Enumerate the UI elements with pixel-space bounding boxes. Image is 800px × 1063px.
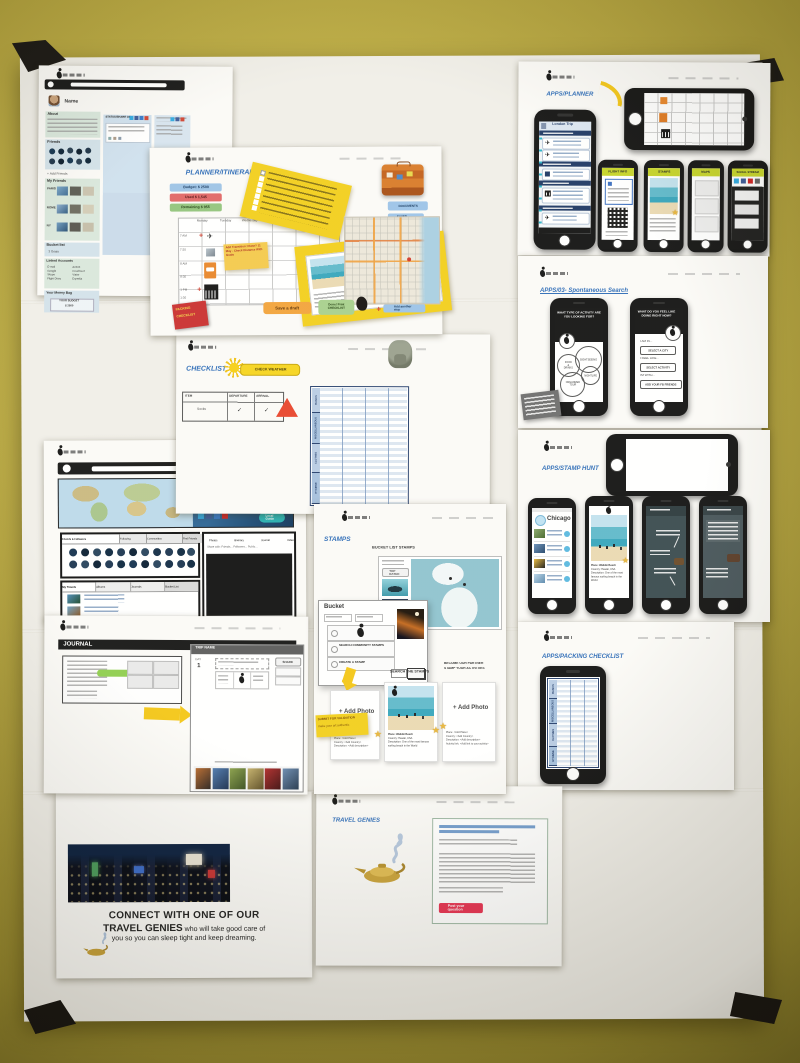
share-box: Photos Itinerary Journal Video Share wit… (202, 531, 296, 619)
journal-setup-box (62, 656, 182, 705)
social-tabs-box: Friends & Followers Following Communitie… (60, 532, 200, 579)
row-thumb (534, 574, 545, 583)
side-button (275, 676, 301, 685)
top-rated-button: TOP RATED (382, 568, 409, 577)
check-weather-label: CHECK WEATHER (254, 368, 286, 372)
brand-logo-text (550, 446, 572, 449)
challenge-footer-lines (706, 568, 728, 578)
backpack-pocket (394, 354, 406, 364)
departure-check: ✓ (237, 407, 242, 414)
phone-speaker (557, 114, 573, 117)
itinerary-phone: London Trip ✈ ✈ ✈ (534, 109, 597, 249)
card-fields: Place: <Add Place> Country: <Add Country… (334, 737, 368, 748)
travel-genies-title: TRAVEL GENIES (332, 818, 380, 824)
packing-rows (320, 388, 407, 504)
done-print-button: Done! Print CHECKLIST (318, 300, 354, 315)
packing-section-label: HYGIENE (315, 482, 318, 493)
apps-search-title: APPS/03- Spontaneous Search (540, 288, 628, 294)
stamp-detail-screen: ★ Place: Waikiki Beach Country: Hawaii, … (589, 506, 629, 598)
airline-logo-square (608, 182, 612, 186)
map-pin (449, 577, 452, 580)
phone-speaker (718, 500, 729, 502)
field-line: Activity link: <Add link to your activit… (446, 742, 493, 746)
genie-lamp-image (352, 830, 422, 886)
tab-friends-followers: Friends & Followers (62, 534, 120, 543)
save-draft-button: Save a draft (263, 302, 311, 314)
navbar-search-input (71, 83, 167, 88)
status-placeholder-lines (108, 126, 144, 133)
moon-dot (415, 612, 419, 616)
travel-tabs-box: My Travels Albums Journals Bucket List (60, 580, 200, 621)
feel-like-screen: WHAT DO YOU FEEL LIKE DOING RIGHT NOW? I… (635, 308, 683, 402)
friend-avatars-row (49, 148, 55, 154)
top-nav-links (668, 273, 740, 275)
phone-speaker (661, 500, 672, 502)
card-fields: Place: Waikiki Beach Country: Hawaii, US… (388, 733, 434, 748)
sheet-journal: JOURNAL TRIP NAME DAY 1 SHARE (44, 615, 309, 794)
row-action-circle (564, 531, 570, 537)
tab-bucket-list: Bucket List (165, 582, 198, 591)
select-activity-button: SELECT ACTIVITY (640, 363, 676, 372)
social-share-icons (129, 116, 133, 120)
user-name-label: Name (65, 99, 79, 105)
linked-accounts-right-list: Airbnb Couchsurf Viator Expedia (72, 266, 84, 282)
stamps-phone: STAMPS ★ (644, 160, 684, 252)
wireframe-box (695, 216, 719, 232)
item-table: ITEM DEPARTURE ARRIVAL Socks ✓ ✓ (182, 392, 284, 422)
screen-tab-bar: SOCIAL STREAM (732, 168, 764, 176)
budget-box: YOUR BUDGET $ 2500 (50, 298, 94, 311)
photo-thumb (265, 768, 281, 789)
toolbar-cell (216, 672, 234, 688)
status-bar (532, 508, 572, 512)
status-compose-box (105, 123, 150, 143)
search-stamps-heading: SEARCH THE STAMPS (390, 670, 429, 674)
row-thumb (534, 559, 545, 568)
stamp-photo-whale (382, 579, 408, 596)
about-text-lines (47, 118, 97, 134)
question-text: WHAT DO YOU FEEL LIKE DOING RIGHT NOW? (636, 310, 677, 318)
packing-rows (557, 680, 597, 766)
faq-body-lines (439, 853, 535, 883)
linked-accounts-left-list: E-mail Google Skype Flight Diary (47, 265, 61, 281)
travel-list-thumb (67, 594, 80, 603)
screen-tab-bar: FLIGHT INFO (602, 168, 634, 176)
tape-bottom-right (730, 992, 782, 1024)
home-button (660, 599, 672, 611)
popup-option-label: SEARCH COMMUNITY STAMPS (339, 644, 389, 648)
phone-speaker (659, 164, 669, 166)
popup-field (324, 614, 352, 622)
item-cell: Socks (197, 408, 206, 411)
genie-lamp-small (82, 930, 116, 958)
row-thumb (534, 544, 545, 553)
add-photo-label: + Add Photo (453, 705, 488, 711)
linked-account: Flight Diary (47, 277, 61, 281)
top-nav-links (340, 157, 406, 159)
brand-logo-text (546, 272, 568, 275)
profile-social-icons (198, 513, 204, 519)
option-cell (127, 675, 153, 689)
packing-sticker-line2: CHECKLIST (176, 313, 195, 319)
share-item-label: Video (287, 539, 294, 542)
day-section-bar (539, 130, 591, 135)
itinerary-row: ✈ (542, 149, 590, 161)
list-row (534, 558, 570, 572)
packing-section: BASICS (549, 680, 557, 699)
form-label: I FEEL LIKE... (640, 357, 659, 360)
packing-section-label: MISCELLANEOUS (315, 417, 318, 439)
stamp-caption-lines (650, 218, 676, 232)
day-section-bar (539, 161, 591, 166)
stream-post (735, 204, 759, 214)
connect-line2-rest: who will take good care of (183, 926, 266, 933)
packing-section: BASICS (312, 388, 320, 413)
calendar-event-museum (661, 129, 670, 138)
packing-section: CLOTHES (312, 444, 320, 473)
entry-input-placeholder (218, 661, 258, 665)
home-button (559, 235, 571, 247)
add-stop-label: Add another stop (394, 305, 415, 311)
share-box-canvas (206, 553, 292, 615)
star-icon: ★ (374, 729, 382, 740)
validation-note: SUBMIT FOR VALIDATION make your art auth… (315, 713, 368, 738)
budget-box-label: YOUR BUDGET (59, 299, 79, 302)
budget-box-value: $ 2500 (65, 305, 73, 308)
activity-screen: WHAT TYPE OF ACTIVITY ARE YOU LOOKING FO… (555, 308, 603, 402)
top-nav-links (194, 627, 280, 629)
itinerary-screen: London Trip ✈ ✈ ✈ (539, 121, 592, 233)
trip-panel: TRIP NAME DAY 1 SHARE (190, 644, 305, 792)
feel-like-phone: WHAT DO YOU FEEL LIKE DOING RIGHT NOW? I… (630, 298, 688, 416)
packing-section-label: CLOTHES (552, 729, 555, 741)
billboard-blue (134, 866, 144, 873)
brand-logo-text (348, 516, 370, 519)
itinerary-row (542, 187, 590, 203)
brand-logo-icon (341, 513, 348, 521)
popup-option-search: SEARCH COMMUNITY STAMPS (327, 641, 395, 657)
sheet-travel-genies: TRAVEL GENIES Post your question (316, 786, 563, 967)
stamp-detail-phone: ★ Place: Waikiki Beach Country: Hawaii, … (585, 496, 633, 614)
screen-footer-lines (606, 231, 628, 236)
add-stop-plus: + (376, 305, 381, 314)
status-box-title: STATUS/SHARE ON (105, 116, 130, 119)
packing-section-label: CLOTHES (315, 452, 318, 464)
friend-group-label: NY (47, 224, 51, 227)
arrival-check: ✓ (264, 407, 269, 414)
row-text-lines (547, 560, 562, 568)
museum-event-icon (204, 284, 218, 299)
list-row (534, 543, 570, 557)
museum-icon (545, 190, 551, 196)
faq-heading-lines (439, 830, 499, 833)
popup-photo (397, 609, 424, 639)
button-label: ADD YOUR FB FRIENDS (645, 383, 676, 386)
user-avatar (49, 95, 60, 106)
home-button (603, 599, 615, 611)
sheet-apps-planner: APPS/PLANNER London Trip ✈ (517, 61, 770, 256)
time-label: 7:30 (180, 249, 186, 252)
transition-note-tag: Add Transition: Plane? 11 May - Check Di… (223, 242, 268, 270)
logo-strip (589, 506, 629, 514)
save-draft-label: Save a draft (275, 306, 299, 310)
packing-section: HYGIENE (312, 473, 320, 504)
popup-field (355, 614, 383, 622)
packing-section: CLOTHES (549, 724, 557, 747)
packing-table-mini: BASICS MISCELLANEOUS CLOTHES HYGIENE (547, 678, 599, 768)
packing-section: MISCELLANEOUS (549, 699, 557, 724)
day-value: 1 (197, 663, 200, 669)
journal-title: JOURNAL (63, 642, 92, 648)
home-button (701, 239, 711, 249)
boarding-pass-card (605, 179, 633, 205)
calendar-event-orange (659, 113, 667, 122)
trip-name-label: TRIP NAME (195, 646, 215, 650)
top-nav-links (436, 801, 516, 803)
local-guide-badge: Local Guide (259, 513, 285, 523)
city-logo-circle (535, 515, 546, 526)
flight-info-screen: FLIGHT INFO (602, 168, 634, 240)
challenge-text-box (706, 520, 740, 542)
time-label: 1 PM (180, 289, 187, 292)
toolbar-cell-logo (234, 672, 252, 688)
faq-heading-lines (439, 825, 535, 828)
radio-icon (331, 661, 338, 668)
suitcase-stickers (387, 172, 393, 177)
form-label: I AM IN... (640, 340, 652, 343)
share-button: SHARE (275, 657, 301, 666)
day-section-bar (539, 180, 591, 185)
screen-bottom-bar (539, 227, 591, 233)
profile-sidebar: About Friends + Add Friends My Friends P… (44, 111, 100, 289)
phone-speaker (604, 500, 615, 502)
brand-logo-icon (543, 633, 550, 641)
select-city-button: SELECT A CITY (640, 346, 676, 355)
row-action-circle (564, 561, 570, 567)
documents-button: DOCUMENTS (388, 201, 428, 210)
screen-tab-bar: STAMPS (648, 168, 680, 176)
train-icon (206, 267, 214, 271)
chicago-screen: Chicago (532, 508, 572, 598)
home-button (573, 400, 586, 413)
row-text-lines (547, 530, 562, 538)
walkthrough-phone-1 (642, 496, 690, 614)
friend-group-thumbnails (57, 186, 68, 195)
stamp-logo-icon (391, 688, 398, 696)
stamp-fields: Place: Waikiki Beach Country: Hawaii, US… (591, 564, 627, 583)
brand-logo-text (552, 76, 574, 79)
photo-thumb (247, 768, 263, 789)
validation-note-line1: SUBMIT FOR VALIDATION (318, 716, 355, 721)
sheet-apps-packing: APPS/PACKING CHECKLIST BASICS MISCELLANE… (518, 622, 734, 790)
bucket-list-stamps-heading: BUCKET LIST STAMPS (372, 546, 415, 550)
brand-logo-text (338, 800, 360, 803)
popup-option-create: CREATE A STAMP (327, 657, 395, 671)
about-title: About (47, 112, 57, 116)
top-nav-links (668, 77, 738, 79)
hint-arrow (670, 576, 676, 585)
friend-group-label: ROME (47, 206, 56, 209)
packing-phone: BASICS MISCELLANEOUS CLOTHES HYGIENE (540, 666, 606, 784)
follower-avatars-row (69, 560, 77, 568)
phone-speaker (653, 302, 665, 304)
map-screen (626, 439, 728, 491)
warning-triangle-icon (276, 398, 298, 417)
billboard-white (186, 854, 202, 865)
friends-section: Friends (45, 139, 100, 169)
itinerary-row: ✈ (542, 212, 590, 224)
side-button (275, 667, 301, 676)
status-box: STATUS/SHARE ON (103, 115, 152, 193)
photo-thumb (230, 768, 246, 789)
packing-sticker: PACKING CHECKLIST (172, 300, 209, 329)
tab-label: My Travels (62, 586, 76, 589)
budget-pill: Budget: $ 2500 (170, 183, 222, 191)
sticky-note-lines (259, 172, 337, 229)
tab-label: Communities (147, 537, 162, 540)
walkthrough-phone-2 (699, 496, 747, 614)
add-event-plus: + (197, 286, 201, 293)
home-button (613, 239, 623, 249)
row-action-circle (564, 576, 570, 582)
photo-strip (194, 766, 300, 790)
planner-title: PLANNER/ITINERARY (186, 169, 259, 176)
time-label: 8 AM (180, 263, 187, 266)
secondary-share-icons (170, 117, 174, 121)
calendar-event-orange (660, 97, 667, 104)
budget-pill-label: Budget: $ 2500 (183, 186, 209, 190)
star-icon: ★ (672, 208, 679, 217)
bucket-list-section: Bucket list 3 Goals (44, 242, 99, 256)
side-button-circle (610, 458, 624, 472)
wireframe-box (695, 180, 719, 196)
dim-header (646, 506, 686, 516)
hint-text (654, 568, 676, 576)
city-night-photo (68, 844, 230, 903)
walkthrough-screen-2 (703, 506, 743, 598)
add-stop-button: Add another stop (383, 304, 425, 312)
packing-screen: BASICS MISCELLANEOUS CLOTHES HYGIENE (546, 677, 600, 769)
friend-avatars-row (49, 158, 55, 164)
city-header: Chicago (547, 516, 571, 522)
share-item-label: Photos (209, 539, 217, 542)
entry-toolbar (215, 671, 269, 689)
follower-avatars-row (69, 548, 77, 556)
social-stream-phone: SOCIAL STREAM (728, 160, 768, 252)
speaker-dot (742, 117, 747, 122)
map-landscape-phone (606, 434, 738, 496)
sheet-apps-search: APPS/03- Spontaneous Search WHAT TYPE OF… (518, 256, 768, 428)
question-header: WHAT TYPE OF ACTIVITY ARE YOU LOOKING FO… (555, 308, 603, 342)
home-button (653, 400, 666, 413)
hotel-icon (545, 171, 550, 176)
panel-left-lines (382, 560, 404, 565)
photo-thumb (282, 768, 298, 789)
walkthrough-screen-1 (646, 506, 686, 598)
billboard-green (92, 862, 98, 876)
packing-checklist-table: BASICS MISCELLANEOUS CLOTHES HYGIENE (310, 386, 409, 506)
phone-speaker (566, 670, 580, 673)
tab-label: Find Friends (183, 537, 197, 540)
radio-icon (331, 646, 338, 653)
travel-list-thumb (67, 606, 80, 615)
screen-tab-bar: MAPS (692, 168, 720, 176)
tab-journals: Journals (131, 582, 165, 591)
home-button (717, 599, 729, 611)
share-item-label: Journal (261, 539, 270, 542)
travel-tabs-row: My Travels Albums Journals Bucket List (62, 582, 198, 593)
photo-thumb (195, 768, 211, 789)
add-fb-friends-button: ADD YOUR FB FRIENDS (640, 380, 682, 389)
hint-text (650, 550, 670, 555)
time-label: 1:30 (180, 297, 186, 300)
side-button-circle (628, 112, 642, 126)
phone-speaker (613, 164, 623, 166)
dog-photo (356, 297, 367, 311)
trip-panel-header: TRIP NAME (191, 645, 303, 654)
circle-label: FOOD & DRINKS (564, 361, 573, 370)
gray-sticky-note (521, 390, 562, 420)
yellow-arrow (144, 707, 180, 720)
top-nav-links (432, 517, 494, 519)
done-print-label: Done! Print CHECKLIST (327, 304, 345, 311)
money-bag-section: Your Money Bag YOUR BUDGET $ 2500 (44, 290, 99, 312)
share-items-row: Photos Itinerary Journal Video (206, 535, 292, 544)
navbar-logo-icon (48, 81, 54, 87)
sheet-stamps: STAMPS BUCKET LIST STAMPS TOP RATED Buck… (314, 504, 506, 794)
row-text-lines (547, 575, 562, 583)
packing-section-label: MISCELLANEOUS (552, 700, 555, 722)
flight-icon: ✈ (545, 139, 550, 146)
photo-thumb (213, 768, 229, 789)
calendar-screen (644, 93, 744, 146)
share-item-label: Itinerary (234, 539, 244, 542)
tab-following: Following (120, 534, 146, 543)
check-weather-button: CHECK WEATHER (240, 364, 300, 376)
flight-icon: ✈ (545, 151, 550, 158)
qr-code (608, 208, 628, 228)
circle-label: NIGHTLIFE (584, 374, 597, 376)
post-question-button: Post your question (439, 903, 483, 913)
packing-section-label: HYGIENE (552, 750, 555, 761)
flight-info-phone: FLIGHT INFO (598, 160, 638, 252)
menu-icon (541, 123, 546, 124)
linked-accounts-title: Linked Accounts (46, 259, 72, 262)
brand-logo-icon (187, 343, 194, 351)
used-pill: Used $ 1,545 (170, 193, 222, 201)
tab-label: Bucket List (165, 585, 178, 588)
phone-speaker (547, 502, 558, 504)
stamp-photo (388, 686, 434, 730)
option-cell (153, 675, 179, 689)
packing-section: MISCELLANEOUS (312, 413, 320, 444)
social-stream-screen: SOCIAL STREAM (732, 168, 764, 240)
popup-option-label: CREATE A STAMP (339, 661, 365, 664)
landscape-phone (624, 88, 754, 151)
question-text: WHAT TYPE OF ACTIVITY ARE YOU LOOKING FO… (557, 311, 601, 319)
itinerary-row: ✈ (542, 137, 590, 149)
boarding-pass-lines (608, 188, 629, 201)
stamps-title: STAMPS (324, 536, 351, 543)
item-table-header: DEPARTURE (229, 395, 247, 398)
top-rated-label: TOP RATED (389, 570, 402, 576)
faq-panel: Post your question (432, 818, 548, 924)
bucket-goals-line: 3 Goals (48, 250, 58, 253)
attachment-icons (108, 137, 111, 140)
home-button (566, 767, 580, 781)
apps-stamphunt-title: APPS/STAMP HUNT (542, 466, 599, 472)
friends-title: Friends (47, 140, 60, 144)
